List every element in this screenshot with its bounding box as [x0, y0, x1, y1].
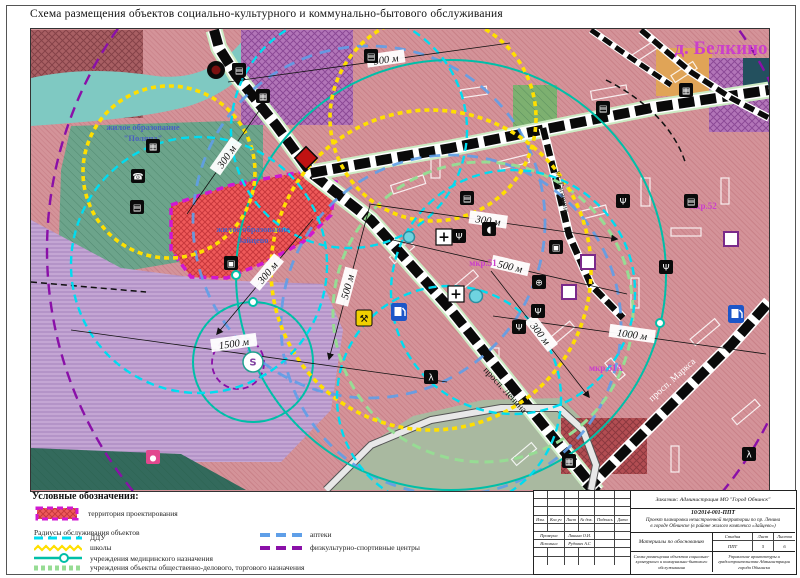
- stamp-checked-name: Ланина О.И.: [565, 532, 596, 539]
- label-mkr51: мкр.51: [469, 258, 497, 268]
- stamp-col-izm: Изм.: [534, 516, 548, 523]
- purple-box-icon: [581, 255, 595, 269]
- legend-item-trade: учреждения объекты общественно-делового,…: [34, 563, 304, 572]
- grid-icon: ▦: [149, 143, 158, 153]
- pink-box-icon: ●: [146, 450, 160, 464]
- stamp-sheet-title: Схема размещения объектов социально-куль…: [631, 552, 713, 572]
- legend-item-label: учреждения объекты общественно-делового,…: [90, 563, 304, 572]
- stamp-col-dok: № док.: [579, 516, 596, 523]
- stamp-right: Заказчик: Администрация МО "Город Обнинс…: [631, 491, 795, 574]
- medical-line-icon: [34, 553, 82, 563]
- stamp-col-data: Дата: [615, 516, 630, 523]
- label-mkr51a: мкр.51А: [589, 363, 624, 373]
- title-block: Изм. Кол.уч Лист № док. Подпись Дата Про…: [533, 490, 797, 575]
- legend-item-label: аптеки: [310, 530, 332, 539]
- label-zaitsevo-1: жилое образование: [216, 224, 289, 234]
- stamp-header-row: Изм. Кол.уч Лист № док. Подпись Дата: [534, 516, 630, 524]
- person-icon: Ψ: [534, 308, 541, 318]
- svg-text:+: +: [438, 230, 450, 246]
- stamp-author-label: Исполнил: [534, 540, 565, 547]
- stage-value-listov: 6: [774, 541, 795, 552]
- grid-icon: ▦: [259, 93, 268, 103]
- building-icon: ▤: [463, 195, 472, 205]
- label-poliana-1: жилое образование: [106, 122, 179, 132]
- territory-swatch-icon: [34, 505, 80, 522]
- phone-icon: ☎: [132, 173, 143, 183]
- sport-line-icon: [260, 544, 302, 552]
- fuel-station-icon: [391, 303, 407, 321]
- fuel-station-icon: [728, 305, 744, 323]
- runner-icon: λ: [428, 374, 434, 384]
- legend-item-schools: школы: [34, 543, 111, 552]
- stamp-checked-row: Проверил Ланина О.И.: [534, 532, 630, 540]
- building-icon: ▤: [235, 67, 244, 77]
- trade-line-icon: [34, 564, 82, 572]
- building-icon: ▤: [687, 198, 696, 208]
- legend-item-medical: учреждения медицинского назначения: [34, 553, 213, 563]
- person-icon: Ψ: [455, 233, 462, 243]
- stamp-checked-label: Проверил: [534, 532, 565, 539]
- square-icon: ▣: [552, 244, 561, 254]
- stage-header-list: Лист: [753, 533, 774, 540]
- svg-text:⚒: ⚒: [360, 314, 369, 325]
- stamp-doc-number: 10/2014-001-ППТ: [631, 510, 795, 518]
- stamp-col-koluch: Кол.уч: [548, 516, 565, 523]
- pharmacy-line-icon: [260, 531, 302, 539]
- school-zigzag-icon: [34, 544, 82, 552]
- svg-text:S: S: [249, 358, 256, 369]
- half-circle-icon: ◖: [487, 226, 492, 236]
- stage-value-list: 5: [753, 541, 774, 552]
- stamp-left-grid: Изм. Кол.уч Лист № док. Подпись Дата Про…: [534, 491, 631, 574]
- drawing-page: Схема размещения объектов социально-куль…: [0, 0, 800, 578]
- square-icon: ▣: [227, 260, 236, 270]
- s-marker-icon: S: [243, 352, 263, 372]
- stamp-author-row: Исполнил Рудович А.С: [534, 540, 630, 548]
- med-icon: ⊕: [535, 279, 543, 289]
- purple-box-icon: [724, 232, 738, 246]
- metro-icon: [207, 61, 225, 79]
- stamp-author-name: Рудович А.С: [565, 540, 596, 547]
- ddu-line-icon: [34, 534, 82, 542]
- person-icon: Ψ: [662, 264, 669, 274]
- legend-territory-label: территория проектирования: [88, 509, 178, 518]
- stage-value-stadia: ППТ: [713, 541, 753, 552]
- medical-cross-icon: +: [448, 286, 464, 303]
- building-icon: ▤: [599, 105, 608, 115]
- legend-title: Условные обозначения:: [32, 491, 512, 502]
- legend: Условные обозначения: территория проекти…: [32, 491, 512, 575]
- grid-icon: ▦: [565, 458, 574, 468]
- poi-dot-icon: [404, 232, 415, 243]
- stamp-project-line2: в городе Обнинске (в районе жилого компл…: [631, 524, 795, 531]
- legend-item-label: школы: [90, 543, 111, 552]
- legend-item-sport: физкультурно-спортивные центры: [260, 543, 420, 552]
- stamp-project: 10/2014-001-ППТ Проект планировки незаст…: [631, 509, 795, 533]
- legend-item-pharmacy: аптеки: [260, 530, 332, 539]
- building-icon: ▤: [133, 204, 142, 214]
- person-icon: Ψ: [619, 198, 626, 208]
- stamp-col-podpis: Подпись: [595, 516, 615, 523]
- legend-item-label: ДДУ: [90, 533, 106, 542]
- legend-item-ddu: ДДУ: [34, 533, 106, 542]
- runner-icon: λ: [746, 451, 752, 461]
- stage-header-listov: Листов: [774, 533, 795, 540]
- svg-text:+: +: [450, 287, 462, 303]
- medical-cross-icon: +: [436, 229, 452, 246]
- stamp-materials: Материалы по обоснованию: [631, 533, 713, 552]
- building-icon: ▤: [367, 53, 376, 63]
- person-icon: Ψ: [515, 324, 522, 334]
- legend-item-label: физкультурно-спортивные центры: [310, 543, 420, 552]
- stamp-organization: Управление архитектуры и градостроительс…: [713, 552, 795, 572]
- stamp-customer: Заказчик: Администрация МО "Город Обнинс…: [631, 491, 795, 509]
- legend-item-label: учреждения медицинского назначения: [90, 554, 213, 563]
- stamp-col-list: Лист: [565, 516, 579, 523]
- label-belkino: д. Белкино: [674, 38, 767, 59]
- map-canvas: 500 м 300 м 300 м 500 м 1500 м 300 м 500…: [31, 29, 769, 491]
- svg-text:●: ●: [150, 454, 157, 463]
- purple-box-icon: [562, 285, 576, 299]
- poi-dot-icon: [470, 290, 483, 303]
- city-plan-map: 500 м 300 м 300 м 500 м 1500 м 300 м 500…: [30, 28, 770, 492]
- stage-header-stadia: Стадия: [713, 533, 753, 540]
- label-zaitsevo-2: Зайцево: [237, 235, 268, 245]
- legend-territory-row: территория проектирования: [34, 505, 178, 522]
- stamp-stage-table: Стадия Лист Листов ППТ 5 6: [713, 533, 795, 552]
- works-icon: ⚒: [356, 310, 372, 326]
- grid-icon: ▦: [682, 87, 691, 97]
- page-title: Схема размещения объектов социально-куль…: [30, 8, 503, 20]
